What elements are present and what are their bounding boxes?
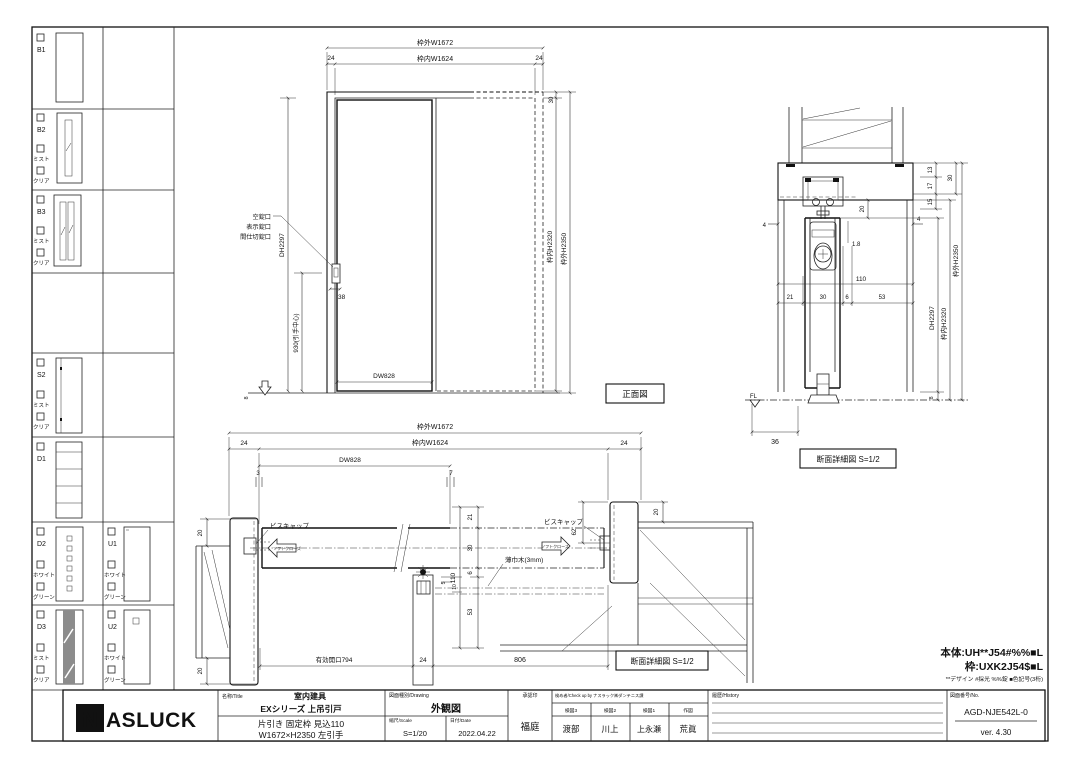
dim-24-left: 24 [240,440,248,447]
approval-header: 承認印 [522,692,537,699]
date-header: 日付/Date [450,717,471,724]
guide-screw [420,569,426,575]
dim-20-top-left: 20 [198,529,204,536]
logo-n: N [82,707,98,732]
variant-id: U2 [108,624,117,631]
option-label: クリア [33,260,50,267]
dim-handle-center: 930(引手中心) [292,313,300,352]
dim-53: 53 [879,295,886,301]
spec-line-2: W1672×H2350 左引手 [259,730,344,740]
check-name: 川上 [601,724,619,734]
option-label: クリア [33,178,50,185]
variant-id: D1 [37,456,46,463]
dim-door-width: DW828 [339,457,361,464]
variant-id: S2 [37,372,46,379]
drawing-type: 外観図 [430,702,461,715]
dim-frame-inner-height: 枠内H2320 [545,231,554,264]
spec-line-1: 片引き 固定枠 見込110 [258,719,345,729]
soft-close-label: ソフトクローズ [541,543,569,549]
logo-text: ASLUCK [106,709,197,732]
dim-20-bottom-left: 20 [198,667,204,674]
dim-24-right: 24 [535,55,543,62]
dim-30-right: 30 [948,174,954,181]
scale-header: 縮尺/Scale [389,717,412,724]
dim-24-left: 24 [327,55,335,62]
variant-id: D3 [37,624,46,631]
lock-label-2: 表示錠口 [246,223,271,231]
view-title: 断面詳細図 S=1/2 [816,454,880,464]
variant-id: B2 [37,127,46,134]
dim-1-8: 1.8 [852,242,861,248]
dim-effective-opening: 有効開口794 [316,655,353,664]
view-title: 正面図 [622,389,648,399]
check-name: 上永瀬 [637,724,661,734]
variant-id: U1 [108,541,117,548]
check-role: 検図2 [604,707,617,714]
variant-id: B1 [37,47,46,54]
product-category: 室内建具 [294,691,326,701]
dim-806: 806 [514,657,526,664]
dim-24-bottom: 24 [419,657,427,664]
check-role: 検図3 [565,707,578,714]
option-label: ミスト [33,655,50,662]
dim-13: 13 [928,166,934,173]
dim-5: 5 [441,581,447,584]
dim-frame-inner-width: 枠内W1624 [417,54,453,63]
dim-15: 15 [928,198,934,205]
drawing-header: 図面種別/Drawing [389,692,429,699]
dim-door-height: DH2297 [279,233,286,257]
check-name: 渡部 [562,724,580,734]
version: ver. 4.30 [981,728,1012,737]
dim-36: 36 [771,439,779,446]
check-name: 荒眞 [679,724,697,734]
screw-cap-label: ビスキャップ [544,517,584,526]
floor-guide [817,374,829,395]
cad-drawing: B1 B2 ミスト クリア B3 ミスト クリア [0,0,1080,764]
drawing-sheet: B1 B2 ミスト クリア B3 ミスト クリア [0,0,1080,764]
option-label: グリーン [104,676,126,684]
option-label: ホワイト [33,572,55,579]
check-header: 検め者/Check up by ナスラック㈱ダンテニス課 [555,692,644,699]
dim-frame-inner-height: 枠内H2320 [939,308,948,341]
option-label: クリア [33,424,50,431]
dim-62: 62 [572,528,578,535]
lock-label-1: 空錠口 [252,213,271,221]
history-header: 履歴/History [712,693,739,699]
variant-id: D2 [37,541,46,548]
dim-30-top: 30 [549,96,555,103]
check-role: 検図1 [643,707,656,714]
skirting-label: 薄巾木(3mm) [505,555,543,564]
dim-20: 20 [860,205,866,212]
dim-110: 110 [450,572,457,583]
dim-frame-outer-height: 枠外H2350 [951,245,960,278]
option-label: グリーン [33,593,55,601]
approval-name: 福庭 [520,721,540,733]
title-block: N ASLUCK 名称/Title 室内建具 EXシリーズ 上吊引戸 片引き 固… [63,690,1045,741]
dim-frame-outer-width: 枠外W1672 [417,38,453,47]
dim-21: 21 [468,513,474,520]
code-legend: **デザイン #採光 %%錠 ■色記号(3桁) [946,675,1043,683]
body-code: 本体:UH**J54#%%■L [940,646,1043,659]
option-label: グリーン [104,593,126,601]
fl-label: FL [750,394,758,400]
dim-frame-outer-width: 枠外W1672 [417,422,453,431]
frame-code: 枠:UXK2J54$■L [965,660,1044,673]
drawing-number: AGD-NJE542L-0 [964,707,1028,717]
dim-24-right: 24 [620,440,628,447]
sheet-border [32,27,1048,741]
dim-frame-outer-height: 枠外H2350 [559,233,568,266]
dim-110: 110 [856,276,867,283]
dim-21: 21 [787,295,794,301]
drawing-no-header: 図面番号/No. [950,692,979,699]
option-label: クリア [33,677,50,684]
dim-38: 38 [338,294,346,301]
check-role: 作図 [683,707,693,714]
date-value: 2022.04.22 [458,729,496,738]
dim-10: 10 [452,584,458,590]
option-label: ミスト [33,402,50,409]
lock-label-3: 間仕切錠口 [240,233,271,241]
option-label: ミスト [33,238,50,245]
dim-30: 30 [820,295,827,301]
dim-17: 17 [928,182,934,189]
dim-8: 8 [929,396,935,399]
nasluck-logo: N ASLUCK [76,704,197,732]
option-label: ホワイト [104,572,126,579]
dim-door-width: DW828 [373,373,395,380]
variant-id: B3 [37,209,46,216]
view-title: 断面詳細図 S=1/2 [630,656,694,666]
dim-30: 30 [468,544,474,551]
dim-20-right: 20 [654,508,660,515]
dim-frame-inner-width: 枠内W1624 [412,438,448,447]
option-label: ホワイト [104,655,126,662]
dim-53: 53 [468,608,474,615]
product-series: EXシリーズ 上吊引戸 [260,704,342,714]
scale-value: S=1/20 [403,729,427,738]
name-header: 名称/Title [222,693,243,700]
option-label: ミスト [33,156,50,163]
handle [332,264,340,283]
dim-door-height: DH2297 [929,306,936,330]
dim-8: 8 [244,396,250,399]
